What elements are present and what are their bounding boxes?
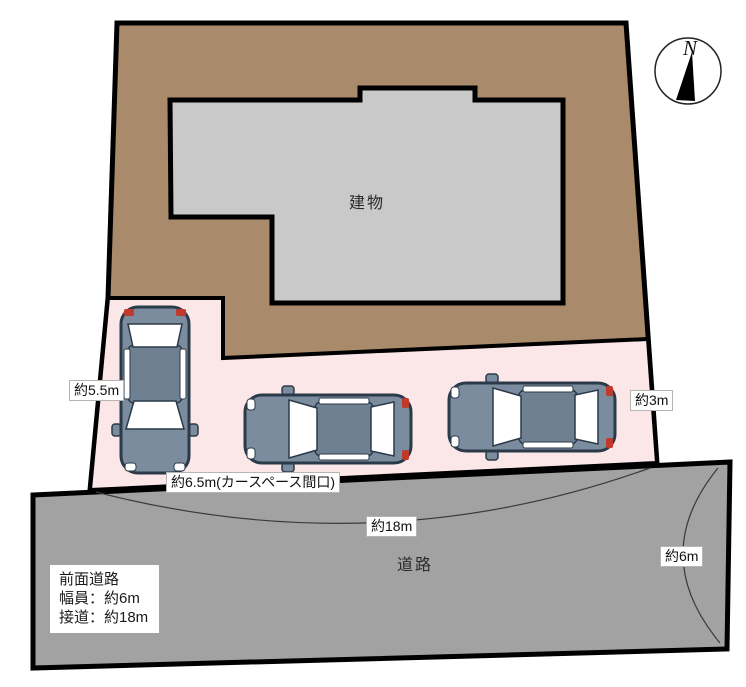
front-road-info-box: 前面道路 幅員：約6m 接道：約18m xyxy=(50,565,159,633)
car-horizontal-right xyxy=(449,374,615,460)
road-width-label: 約6m xyxy=(660,546,703,567)
site-plan-screenshot: N 建物 道路 約5.5m 約6.5m(カースペース間口) 約3m 約18m 約… xyxy=(0,0,746,687)
car-space-frontage-label: 約6.5m(カースペース間口) xyxy=(166,472,340,493)
front-road-info-title: 前面道路 xyxy=(59,570,148,589)
side-gap-label: 約3m xyxy=(630,390,673,411)
road-label: 道路 xyxy=(397,556,433,575)
building-label: 建物 xyxy=(349,194,385,213)
car-vertical xyxy=(112,307,198,473)
road-frontage-label: 約18m xyxy=(366,516,417,537)
car-horizontal-left xyxy=(245,386,411,472)
front-road-info-frontage: 接道：約18m xyxy=(59,608,148,627)
front-road-info-width: 幅員：約6m xyxy=(59,589,148,608)
compass: N xyxy=(655,36,721,104)
compass-north-label: N xyxy=(682,36,698,60)
car-space-depth-label: 約5.5m xyxy=(69,380,124,401)
